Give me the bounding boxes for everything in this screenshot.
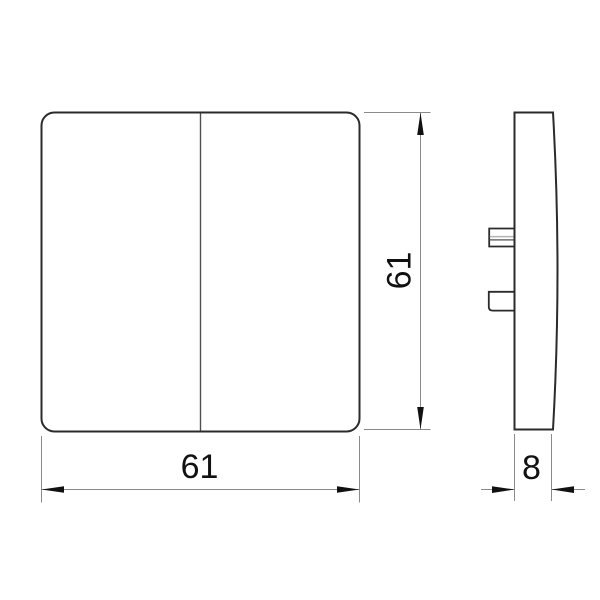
- switch-dimension-drawing: 61 61 8: [0, 0, 600, 600]
- depth-dimension: 8: [481, 434, 585, 501]
- height-arrow-top-icon: [417, 113, 424, 136]
- depth-dimension-value: 8: [522, 449, 541, 487]
- width-dimension: 61: [42, 436, 360, 503]
- front-view: [42, 113, 360, 432]
- width-dimension-value: 61: [181, 448, 219, 486]
- width-arrow-left-icon: [42, 486, 65, 493]
- height-arrow-bottom-icon: [417, 407, 424, 430]
- width-arrow-right-icon: [337, 486, 360, 493]
- side-view: [489, 113, 558, 430]
- height-dimension: 61: [364, 113, 431, 430]
- depth-arrow-right-icon: [552, 486, 575, 493]
- technical-drawing-canvas: 61 61 8: [0, 0, 600, 600]
- side-view-outline: [515, 113, 558, 430]
- clip-top: [489, 229, 514, 247]
- clip-bottom: [489, 292, 515, 311]
- depth-arrow-left-icon: [492, 486, 515, 493]
- height-dimension-value: 61: [381, 252, 419, 290]
